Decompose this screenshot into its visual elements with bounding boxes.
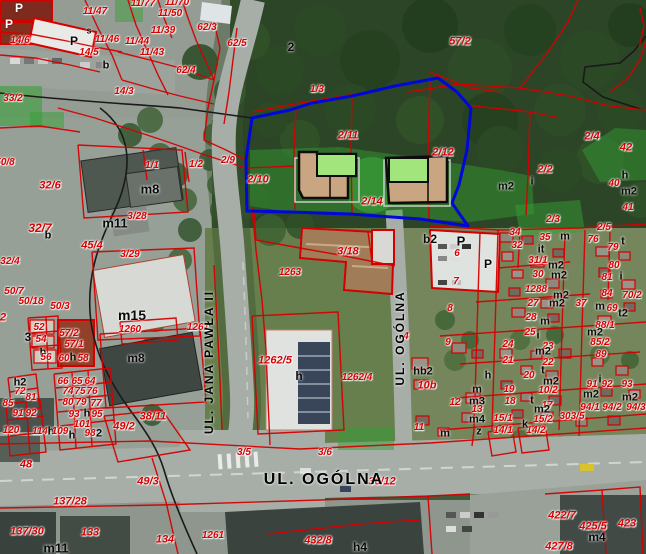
parcel-label: 50/7	[4, 287, 23, 297]
building-type-label: h	[70, 353, 77, 364]
parcel-label: 3/6	[318, 448, 332, 458]
parcel-label: 3/5	[237, 448, 251, 458]
parcel-label: 14/5	[79, 48, 98, 58]
parcel-label: 432/8	[304, 536, 332, 547]
building-type-label: 3	[25, 331, 32, 343]
parcel-label: 92	[25, 409, 36, 419]
parcel-label: 303/5	[559, 412, 584, 422]
parcel-label: 17	[541, 401, 552, 411]
parcel-label: 11/44	[125, 37, 149, 47]
parcel-label: 40	[608, 179, 619, 189]
parcel-label: 114	[32, 427, 48, 437]
parcel-label: 81	[25, 393, 36, 403]
parcel-label: 11/47	[83, 7, 107, 17]
parcel-label: 24	[502, 340, 513, 350]
parcel-label: 45/4	[81, 241, 102, 252]
street-name-label: UL. OGÓLNA	[264, 472, 384, 488]
parcel-label: 91	[586, 380, 597, 390]
parking-sign: P	[5, 18, 13, 30]
parcel-label: 28	[525, 313, 536, 323]
building-type-label: m4	[588, 531, 605, 543]
parcel-label: 11/50	[158, 9, 182, 19]
parcel-label: 10/2	[538, 386, 557, 396]
parcel-label: 11/70	[165, 0, 189, 8]
parcel-label: 74	[62, 387, 73, 397]
building-type-label: m3	[469, 397, 485, 408]
parcel-label: 85/2	[590, 338, 609, 348]
parcel-label: 1262/4	[342, 373, 373, 383]
parcel-label: 12	[449, 398, 460, 408]
parcel-label: 50/8	[0, 158, 15, 168]
parcel-label: 50/3	[50, 302, 69, 312]
building-type-label: i	[598, 375, 601, 386]
parcel-label: 94/2	[602, 403, 621, 413]
parcel-label: 1/2	[189, 160, 203, 170]
parcel-label: 101	[74, 420, 91, 430]
building-type-label: t	[530, 396, 534, 407]
parcel-label: 79	[75, 398, 86, 408]
parcel-label: 36/12	[368, 477, 396, 488]
parcel-label: 20	[523, 371, 534, 381]
building-type-label: m	[440, 429, 450, 440]
building-type-label: m2	[587, 328, 603, 339]
parcel-label: 22	[542, 358, 553, 368]
street-name-label: UL. JANA PAWŁA II	[203, 290, 215, 434]
parcel-label: 23	[542, 342, 553, 352]
parcel-label: 66	[57, 377, 68, 387]
parcel-label: 95	[91, 410, 102, 420]
building-type-label: h	[295, 370, 302, 382]
parcel-label: 120	[3, 426, 20, 436]
parcel-label: 2/14	[361, 197, 382, 208]
building-type-label: i	[536, 331, 539, 342]
building-type-label: P	[457, 235, 466, 248]
parcel-label: 38/11	[140, 412, 167, 423]
parcel-label: 14/2	[526, 426, 545, 436]
parcel-label: 93	[68, 410, 79, 420]
parcel-label: 9	[445, 338, 451, 348]
parcel-label: 2/9	[221, 156, 235, 166]
parcel-label: 77	[90, 399, 101, 409]
parcel-label: 75	[74, 387, 85, 397]
parcel-label: 2/4	[584, 132, 599, 143]
parcel-label: 62/3	[197, 23, 216, 33]
building-type-label: P	[70, 35, 78, 47]
parcel-label: 56	[40, 353, 51, 363]
building-type-label: h	[69, 431, 76, 442]
parcel-label: 41	[622, 203, 633, 213]
parcel-label: 2/10	[247, 175, 268, 186]
parcel-label: 80	[608, 261, 619, 271]
parcel-label: 427/8	[545, 542, 573, 553]
parcel-label: 50/18	[18, 297, 43, 307]
building-type-label: h	[622, 171, 629, 182]
parcel-label: 94/1	[580, 403, 599, 413]
parcel-label: 62/5	[227, 39, 246, 49]
parcel-label: 57/2	[449, 37, 470, 48]
building-type-label: z	[476, 427, 482, 438]
parcel-label: 94/3	[626, 403, 645, 413]
street-name-label: UL. OGÓLNA	[394, 290, 406, 385]
parcel-label: 8	[447, 304, 453, 314]
parcel-label: 15/2	[533, 415, 552, 425]
parcel-label: 7	[453, 277, 459, 287]
parcel-label: 109	[52, 427, 69, 437]
parcel-label: 93	[621, 380, 632, 390]
building-type-label: b	[45, 231, 52, 242]
building-type-label: m2	[549, 299, 565, 310]
parcel-label: 1/3	[310, 85, 324, 95]
building-type-label: h	[485, 371, 492, 382]
parcel-label: 98	[84, 429, 95, 439]
parcel-label: 85	[2, 399, 13, 409]
parcel-label: 52	[33, 323, 44, 333]
parcel-label: 32	[511, 241, 522, 251]
parcel-label: 32/7	[28, 222, 51, 234]
building-type-label: k	[522, 420, 528, 431]
parcel-label: 422/7	[548, 511, 576, 522]
parcel-label: 57/1	[64, 340, 83, 350]
parcel-label: 3/29	[120, 250, 139, 260]
building-type-label: m2	[498, 182, 514, 193]
building-type-label: t	[541, 366, 545, 377]
building-type-label: h	[48, 427, 55, 438]
parcel-label: 42	[620, 143, 632, 154]
map-canvas[interactable]: PPsPb11/4711/7711/7011/5011/3914/611/461…	[0, 0, 646, 554]
parcel-label: 30	[532, 270, 543, 280]
parcel-label: 13	[471, 405, 482, 415]
parcel-label: 1261	[202, 531, 224, 541]
parcel-label: 25	[524, 328, 535, 338]
parcel-label: 34	[509, 228, 520, 238]
building-type-label: m4	[469, 415, 485, 426]
building-type-label: t2	[618, 309, 628, 320]
parcel-label: 1288	[525, 285, 547, 295]
parcel-label: 133	[81, 528, 99, 539]
building-type-label: m15	[118, 308, 146, 322]
parcel-label: 11/46	[95, 35, 119, 45]
parcel-label: 76	[86, 387, 97, 397]
parcel-label: 88/1	[595, 321, 614, 331]
building-type-label: it	[538, 245, 545, 256]
building-type-label: m2	[622, 393, 638, 404]
building-type-label: b	[103, 61, 110, 72]
building-type-label: m	[595, 302, 605, 313]
parcel-label: 2	[0, 313, 6, 324]
parcel-label: 37	[575, 299, 586, 309]
building-type-label: m2	[553, 291, 569, 302]
parcel-label: 11/77	[131, 0, 155, 9]
parcel-label: 27	[527, 299, 538, 309]
parcel-label: 1/1	[145, 161, 159, 171]
building-type-label: m8	[141, 183, 160, 196]
parcel-label: 81	[601, 273, 612, 283]
parcel-label: 2/11	[338, 131, 359, 142]
parcel-label: 80	[62, 398, 73, 408]
building-type-label: s	[86, 27, 91, 36]
parcel-label: 65	[71, 377, 82, 387]
building-type-label: m	[472, 385, 482, 396]
parking-sign: P	[15, 2, 23, 14]
parcel-label: 70/2	[622, 291, 641, 301]
parcel-label: 6	[454, 249, 460, 259]
parcel-label: 1260	[119, 325, 141, 335]
building-type-label: h	[84, 409, 91, 420]
parcel-label: 14/1	[493, 426, 512, 436]
parcel-label: 425/5	[579, 522, 607, 533]
building-type-label: m2	[543, 377, 559, 388]
parcel-label: 15/1	[493, 414, 512, 424]
parcel-label: 14/3	[114, 87, 133, 97]
building-type-label: h	[40, 348, 47, 359]
parcel-label: 57/2	[59, 329, 78, 339]
building-type-label: i	[530, 177, 533, 188]
building-type-label: 2	[96, 429, 102, 440]
building-type-label: m11	[102, 217, 127, 230]
parcel-label: 35	[539, 233, 550, 243]
parcel-label: 2/12	[432, 148, 453, 159]
parcel-label: 32/6	[39, 181, 60, 192]
building-type-label: hb2	[413, 367, 433, 378]
parcel-label: 2/2	[537, 165, 552, 176]
building-type-label: h2	[14, 378, 27, 389]
parcel-label: 11/43	[140, 48, 164, 58]
parcel-label: 4	[403, 332, 409, 342]
parcel-label: 2/3	[546, 215, 560, 225]
building-type-label: m2	[583, 390, 599, 401]
building-type-label: h4	[353, 541, 367, 553]
parcel-label: 33/2	[3, 94, 22, 104]
parcel-label: 84	[601, 289, 612, 299]
parcel-label: 92	[601, 380, 612, 390]
parcel-label: 2/5	[597, 223, 611, 233]
building-type-label: m2	[535, 347, 551, 358]
parcel-label: 3/28	[127, 212, 146, 222]
parcel-label: 19	[503, 385, 514, 395]
parcel-label: 64	[84, 377, 95, 387]
parcel-label: 1262/5	[258, 356, 292, 367]
parcel-label: 62/4	[176, 66, 195, 76]
parcel-label: 10b	[418, 381, 437, 392]
parcel-label: 3/18	[337, 247, 358, 258]
parcel-label: 21	[502, 356, 513, 366]
building-type-label: i	[619, 272, 622, 283]
parcel-label: 134	[156, 535, 174, 546]
parcel-label: 49/3	[137, 477, 158, 488]
parcel-label: 48	[20, 460, 32, 471]
building-type-label: b2	[423, 233, 437, 245]
building-type-label: P	[484, 258, 492, 270]
parcel-label: 11/39	[151, 26, 175, 36]
parcel-label: 423	[618, 519, 636, 530]
building-type-label: m2	[548, 261, 564, 272]
building-type-label: m	[560, 232, 570, 243]
parcel-label: 137/30	[10, 527, 44, 538]
parcel-label: 1261	[187, 323, 209, 333]
building-type-label: m2	[621, 187, 637, 198]
parcel-label: 58	[77, 354, 88, 364]
building-type-label: t	[621, 237, 625, 248]
building-type-label: m2	[551, 271, 567, 282]
parcel-label: 18	[504, 397, 515, 407]
building-type-label: m2	[534, 405, 550, 416]
building-type-label: m	[540, 317, 550, 328]
building-type-label: m8	[127, 352, 144, 364]
parcel-label: 137/28	[53, 497, 87, 508]
parcel-label: 76	[587, 235, 598, 245]
parcel-label: 91	[12, 409, 23, 419]
parcel-label: 11	[414, 423, 424, 433]
parcel-label: 89	[595, 350, 606, 360]
parcel-label: 14/6	[10, 36, 29, 46]
building-type-label: 2	[288, 41, 295, 53]
parcel-label: 54	[35, 335, 46, 345]
building-type-label: m11	[43, 542, 68, 554]
parcel-label: 69	[606, 304, 617, 314]
parcel-label: 72	[14, 387, 25, 397]
labels-layer: PPsPb11/4711/7711/7011/5011/3914/611/461…	[0, 0, 646, 554]
parcel-label: 79	[607, 243, 618, 253]
parcel-label: 32/4	[0, 257, 19, 267]
parcel-label: 49/2	[113, 422, 134, 433]
parcel-label: 1263	[279, 268, 301, 278]
parcel-label: 31/1	[528, 256, 547, 266]
parcel-label: 60	[58, 354, 69, 364]
